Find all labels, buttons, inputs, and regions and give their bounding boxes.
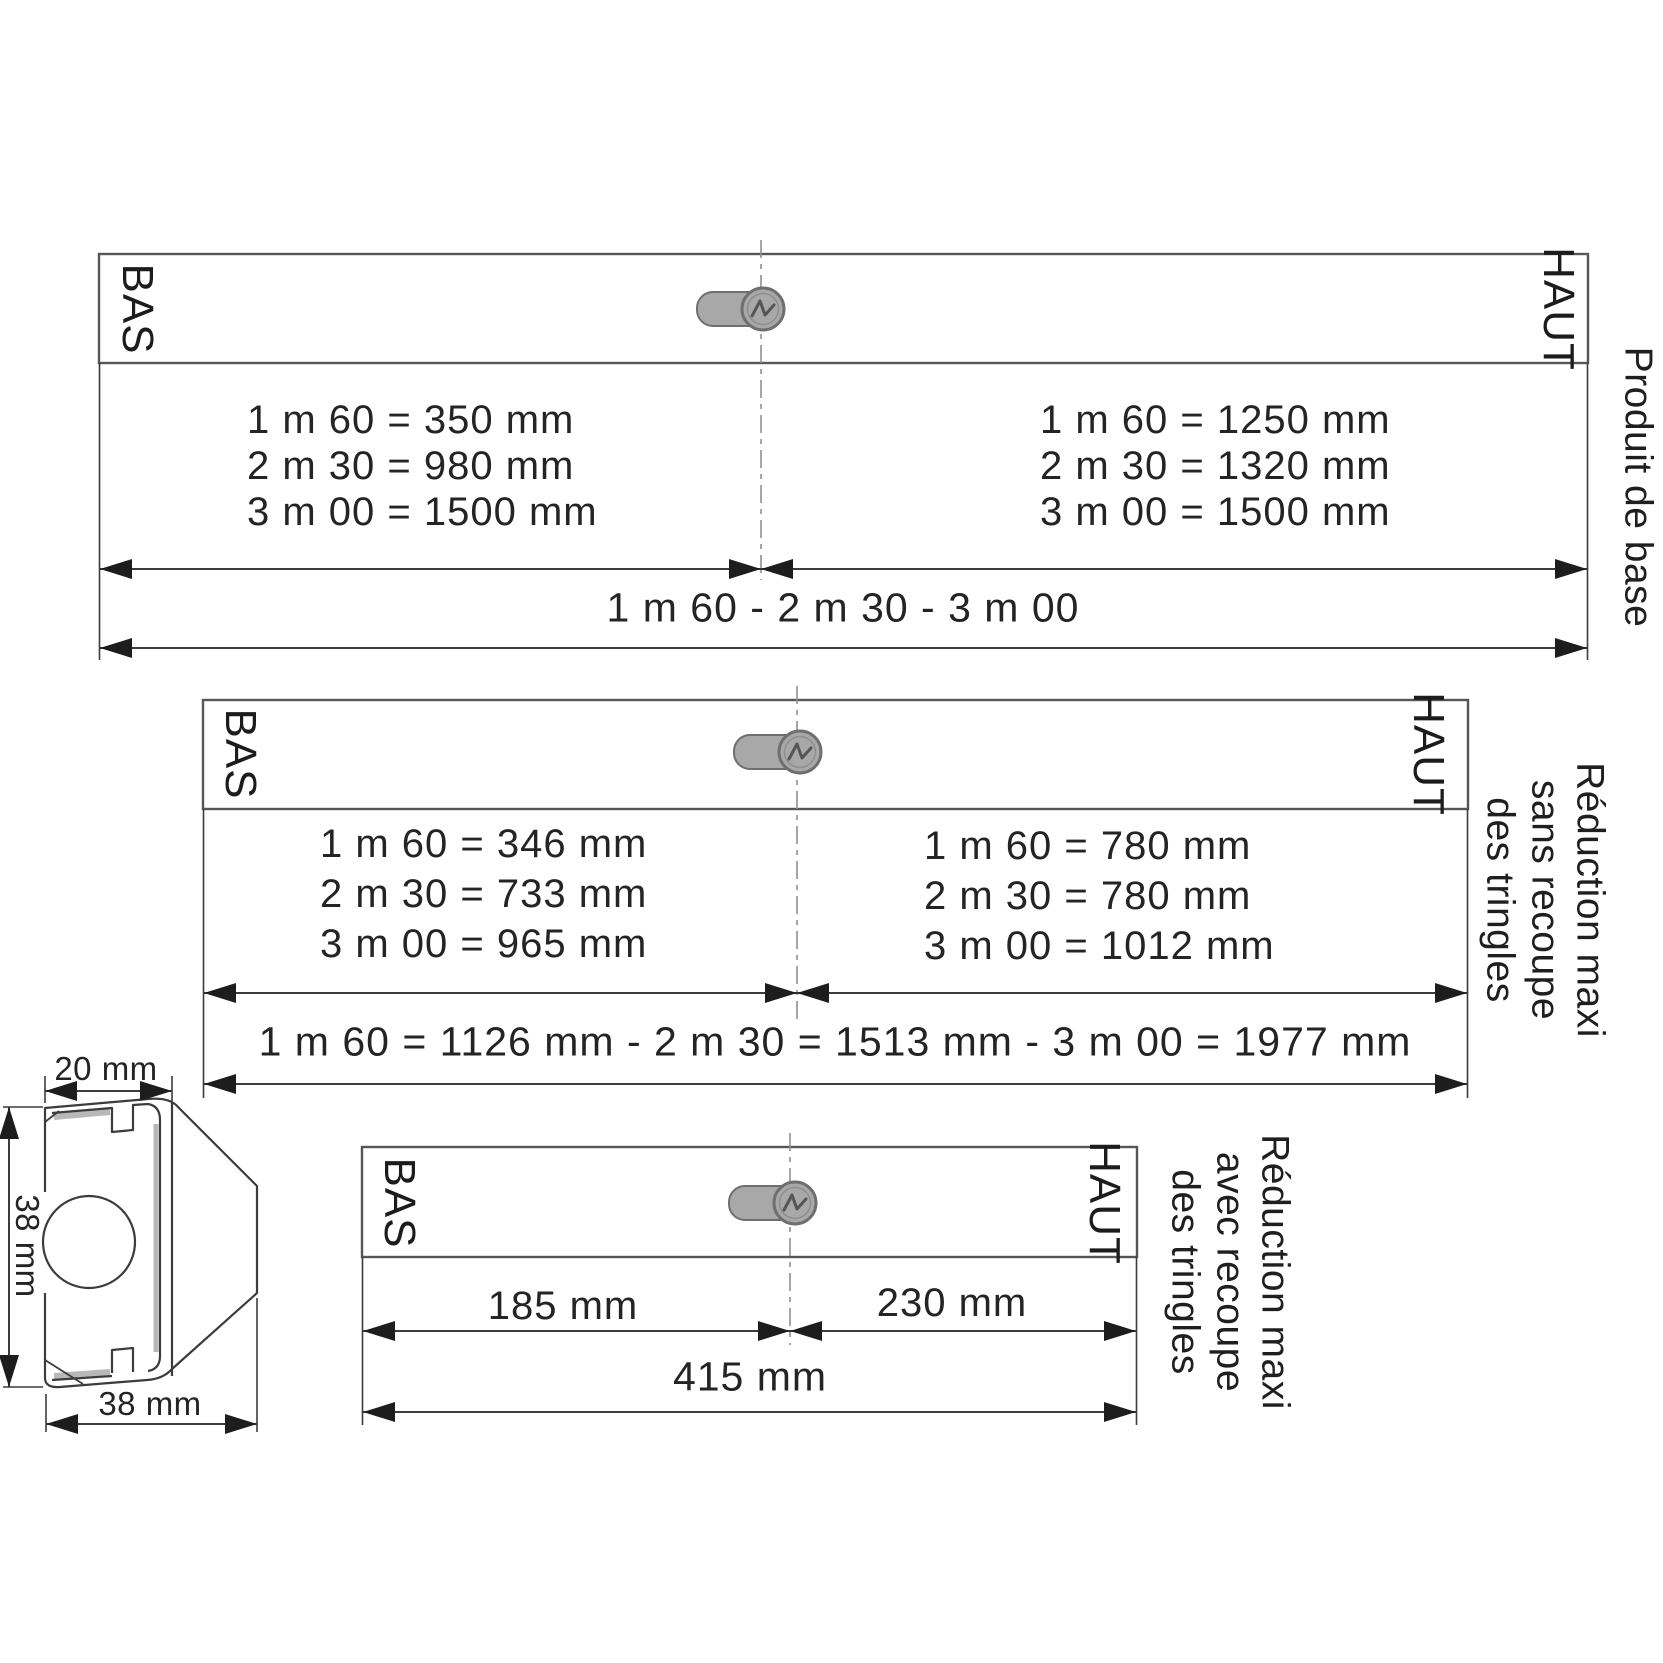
measurement-line: 1 m 60 = 346 mm — [320, 821, 647, 867]
technical-drawing-canvas: BAS HAUT 1 m 60 = 350 mm 2 m 30 = 980 mm… — [0, 0, 1663, 1663]
total-dimension-label: 415 mm — [673, 1354, 827, 1401]
total-dimension-label: 1 m 60 = 1126 mm - 2 m 30 = 1513 mm - 3 … — [259, 1019, 1412, 1066]
haut-label: HAUT — [1079, 1141, 1129, 1265]
measurement-line: 2 m 30 = 780 mm — [924, 873, 1251, 919]
haut-label: HAUT — [1403, 692, 1453, 816]
bas-label: BAS — [215, 708, 265, 799]
drawing-linework — [0, 0, 1663, 1663]
side-caption-line: Réduction maxi — [1253, 1134, 1298, 1410]
side-caption-line: avec recoupe — [1208, 1134, 1253, 1410]
side-caption-line: Produit de base — [1616, 347, 1661, 628]
side-caption: Réduction maxi sans recoupe des tringles — [1478, 762, 1613, 1038]
sans-recoupe-bar — [203, 700, 1468, 809]
cross-section-height-label: 38 mm — [8, 1194, 46, 1297]
side-caption: Produit de base — [1616, 347, 1661, 628]
measurement-line: 3 m 00 = 1500 mm — [247, 489, 598, 535]
base-bar — [99, 254, 1588, 363]
cross-section-width-bottom-label: 38 mm — [98, 1385, 201, 1423]
cross-section-width-top-label: 20 mm — [54, 1050, 157, 1088]
measurement-line: 1 m 60 = 350 mm — [247, 397, 574, 443]
side-caption: Réduction maxi avec recoupe des tringles — [1163, 1134, 1298, 1410]
measurement-line: 3 m 00 = 1500 mm — [1040, 489, 1391, 535]
side-caption-line: Réduction maxi — [1568, 762, 1613, 1038]
cross-section-profile — [43, 1099, 257, 1387]
measurement-line: 2 m 30 = 733 mm — [320, 871, 647, 917]
measurement-line: 3 m 00 = 1012 mm — [924, 923, 1275, 969]
haut-label: HAUT — [1533, 247, 1583, 371]
total-dimension-label: 1 m 60 - 2 m 30 - 3 m 00 — [607, 585, 1080, 632]
bas-label: BAS — [374, 1157, 424, 1248]
side-caption-line: des tringles — [1478, 762, 1523, 1038]
measurement-line: 185 mm — [488, 1283, 639, 1329]
measurement-line: 2 m 30 = 1320 mm — [1040, 443, 1391, 489]
measurement-line: 3 m 00 = 965 mm — [320, 921, 647, 967]
measurement-line: 230 mm — [877, 1280, 1028, 1326]
measurement-line: 1 m 60 = 1250 mm — [1040, 397, 1391, 443]
side-caption-line: sans recoupe — [1523, 762, 1568, 1038]
side-caption-line: des tringles — [1163, 1134, 1208, 1410]
bas-label: BAS — [112, 263, 162, 354]
measurement-line: 1 m 60 = 780 mm — [924, 823, 1251, 869]
keyhole-icon — [734, 731, 821, 773]
keyhole-icon — [697, 288, 784, 330]
measurement-line: 2 m 30 = 980 mm — [247, 443, 574, 489]
keyhole-icon — [729, 1182, 816, 1224]
